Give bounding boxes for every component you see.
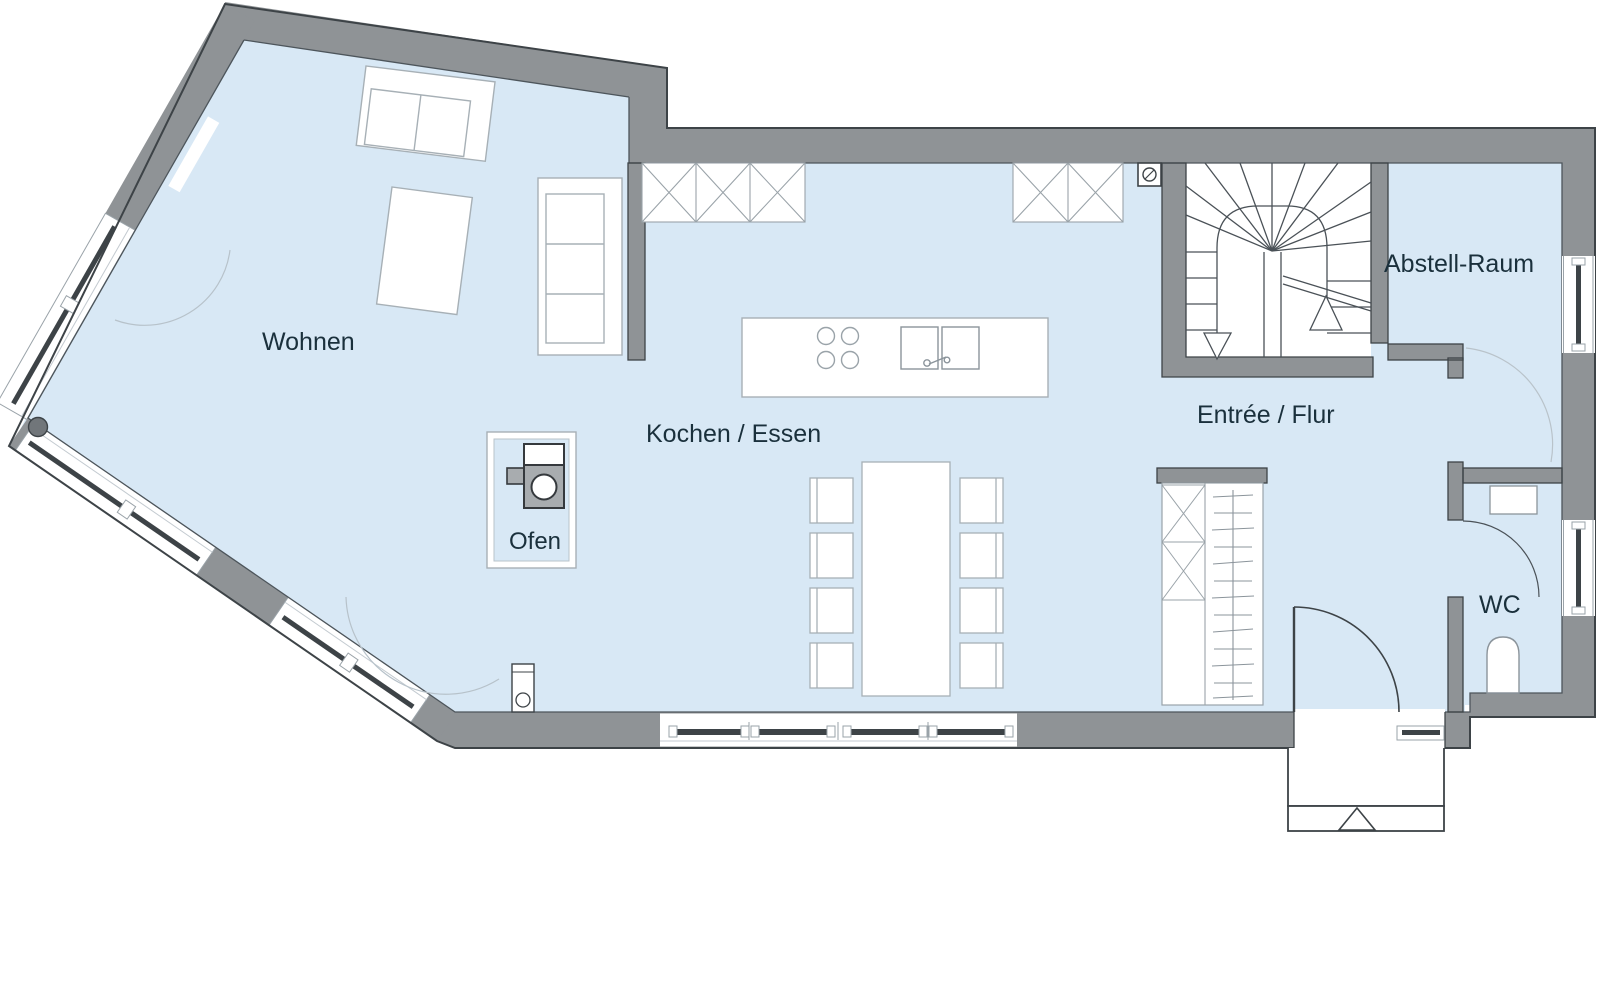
room-label-entree-flur: Entrée / Flur xyxy=(1197,401,1335,429)
room-label-abstell-raum: Abstell-Raum xyxy=(1384,250,1534,278)
wardrobe xyxy=(1162,483,1263,705)
room-label-wohnen: Wohnen xyxy=(262,328,355,356)
kitchen-island xyxy=(742,318,1048,397)
window-wc xyxy=(1562,520,1595,616)
room-label-ofen: Ofen xyxy=(509,528,561,555)
washbasin xyxy=(1490,486,1537,514)
window-abstell xyxy=(1562,256,1595,353)
corner-appliance xyxy=(1138,163,1161,186)
sofa-three-seat xyxy=(538,178,622,355)
room-label-kochen-essen: Kochen / Essen xyxy=(646,420,821,448)
window-band-south xyxy=(660,714,1017,747)
porch-landing xyxy=(1288,748,1444,806)
corner-post xyxy=(29,418,48,437)
floorplan-canvas: Wohnen Kochen / Essen Ofen Entrée / Flur… xyxy=(0,0,1600,1000)
toilet xyxy=(1487,637,1519,693)
stairwell-floor xyxy=(1186,163,1371,357)
wall-column xyxy=(512,664,534,712)
coffee-table xyxy=(377,187,473,315)
floorplan-svg: Wohnen Kochen / Essen Ofen Entrée / Flur… xyxy=(0,0,1600,1000)
room-label-wc: WC xyxy=(1479,591,1521,619)
dining-table xyxy=(862,462,950,696)
sofa-two-seat xyxy=(356,66,495,161)
